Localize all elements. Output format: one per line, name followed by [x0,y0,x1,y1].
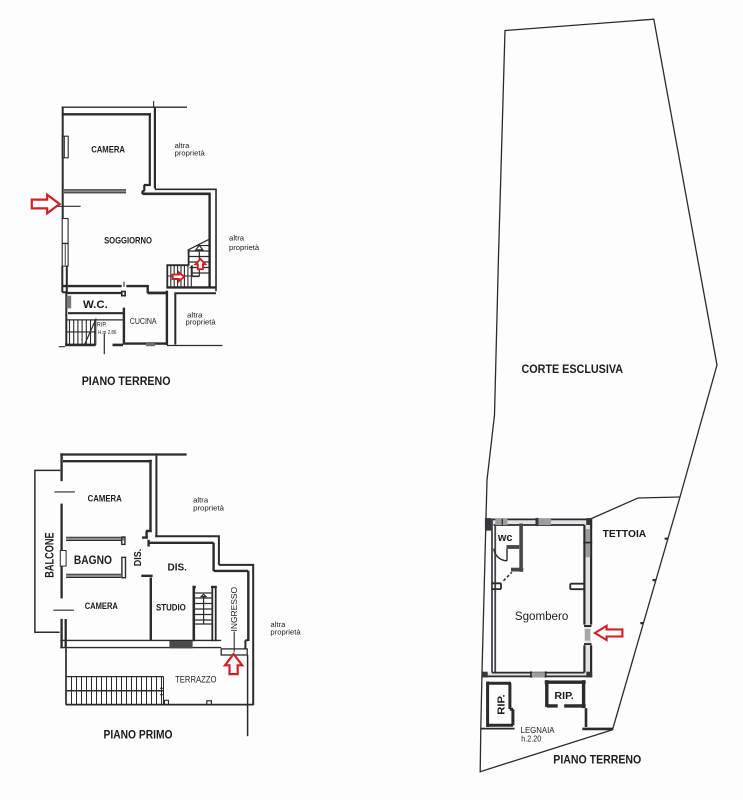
svg-text:TETTOIA: TETTOIA [603,529,647,540]
svg-text:STUDIO: STUDIO [156,603,186,613]
svg-text:CORTE ESCLUSIVA: CORTE ESCLUSIVA [522,362,624,376]
svg-text:CAMERA: CAMERA [91,145,125,155]
svg-text:SOGGIORNO: SOGGIORNO [104,236,152,246]
svg-text:W.C.: W.C. [83,299,108,311]
svg-text:RIP.: RIP. [497,694,508,715]
svg-text:PIANO PRIMO: PIANO PRIMO [104,727,173,741]
svg-text:altra: altra [193,498,208,505]
svg-text:BAGNO: BAGNO [74,553,112,567]
svg-text:CAMERA: CAMERA [85,601,119,611]
svg-text:h.2.20: h.2.20 [521,733,541,743]
svg-text:H.m 2.86: H.m 2.86 [98,330,117,336]
svg-text:PIANO TERRENO: PIANO TERRENO [82,374,171,388]
svg-text:BALCONE: BALCONE [42,532,56,577]
svg-text:RIP.: RIP. [97,322,107,329]
svg-text:RIP.: RIP. [554,691,574,702]
svg-text:DIS.: DIS. [168,562,187,573]
svg-text:proprietà: proprietà [186,319,216,326]
svg-text:Sgombero: Sgombero [515,609,569,623]
svg-text:CAMERA: CAMERA [88,494,123,504]
svg-text:TERRAZZO: TERRAZZO [175,675,216,685]
svg-text:CUCINA: CUCINA [130,317,158,326]
svg-text:proprietà: proprietà [175,151,205,158]
svg-text:DIS.: DIS. [133,549,144,567]
svg-text:altra: altra [229,235,244,242]
svg-text:altra: altra [175,143,190,150]
svg-text:INGRESSO: INGRESSO [229,587,239,632]
svg-text:altra: altra [270,622,285,629]
svg-text:proprietà: proprietà [229,245,259,252]
svg-text:altra: altra [187,312,203,319]
svg-text:proprietà: proprietà [193,505,224,512]
svg-text:PIANO TERRENO: PIANO TERRENO [553,752,641,766]
svg-text:wc: wc [497,532,513,544]
svg-text:proprietà: proprietà [270,629,300,636]
